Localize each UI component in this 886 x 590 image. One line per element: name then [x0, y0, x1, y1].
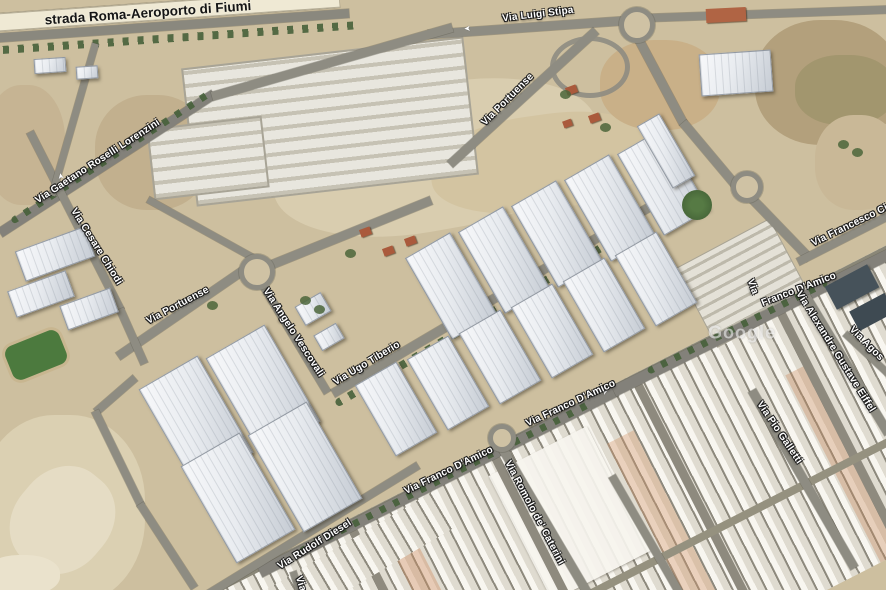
roundabout: [619, 7, 655, 43]
red-roof-house: [404, 235, 417, 246]
ramp-loop: [550, 36, 630, 98]
tree: [207, 301, 218, 310]
tree: [838, 140, 849, 149]
direction-arrow-icon: ➤: [464, 24, 471, 32]
sports-field: [0, 324, 74, 387]
roundabout: [731, 171, 763, 203]
road-top-right: [648, 5, 886, 22]
tree: [300, 296, 311, 305]
terrain-patch: [0, 555, 60, 590]
tree: [314, 305, 325, 314]
roundabout: [239, 254, 275, 290]
round-park: [682, 190, 712, 220]
small-building: [34, 57, 67, 74]
terrain-patch: [815, 115, 886, 210]
tree: [560, 90, 571, 99]
small-building: [313, 323, 345, 352]
terrain-patch: [795, 55, 886, 125]
tree: [852, 148, 863, 157]
campus-building: [699, 50, 774, 97]
small-building: [76, 65, 99, 80]
red-roof-house: [382, 245, 395, 256]
tree: [600, 123, 611, 132]
google-watermark: Google: [708, 323, 776, 344]
tree: [345, 249, 356, 258]
road-lot-access: [146, 196, 260, 264]
road-portuense-south3: [137, 502, 198, 590]
satellite-map-canvas[interactable]: ➤ ➤ ➤ strada Roma-Aeroporto di Fiumi Via…: [0, 0, 886, 590]
red-roof-building: [706, 7, 747, 23]
road-portuense-south1: [93, 375, 137, 415]
